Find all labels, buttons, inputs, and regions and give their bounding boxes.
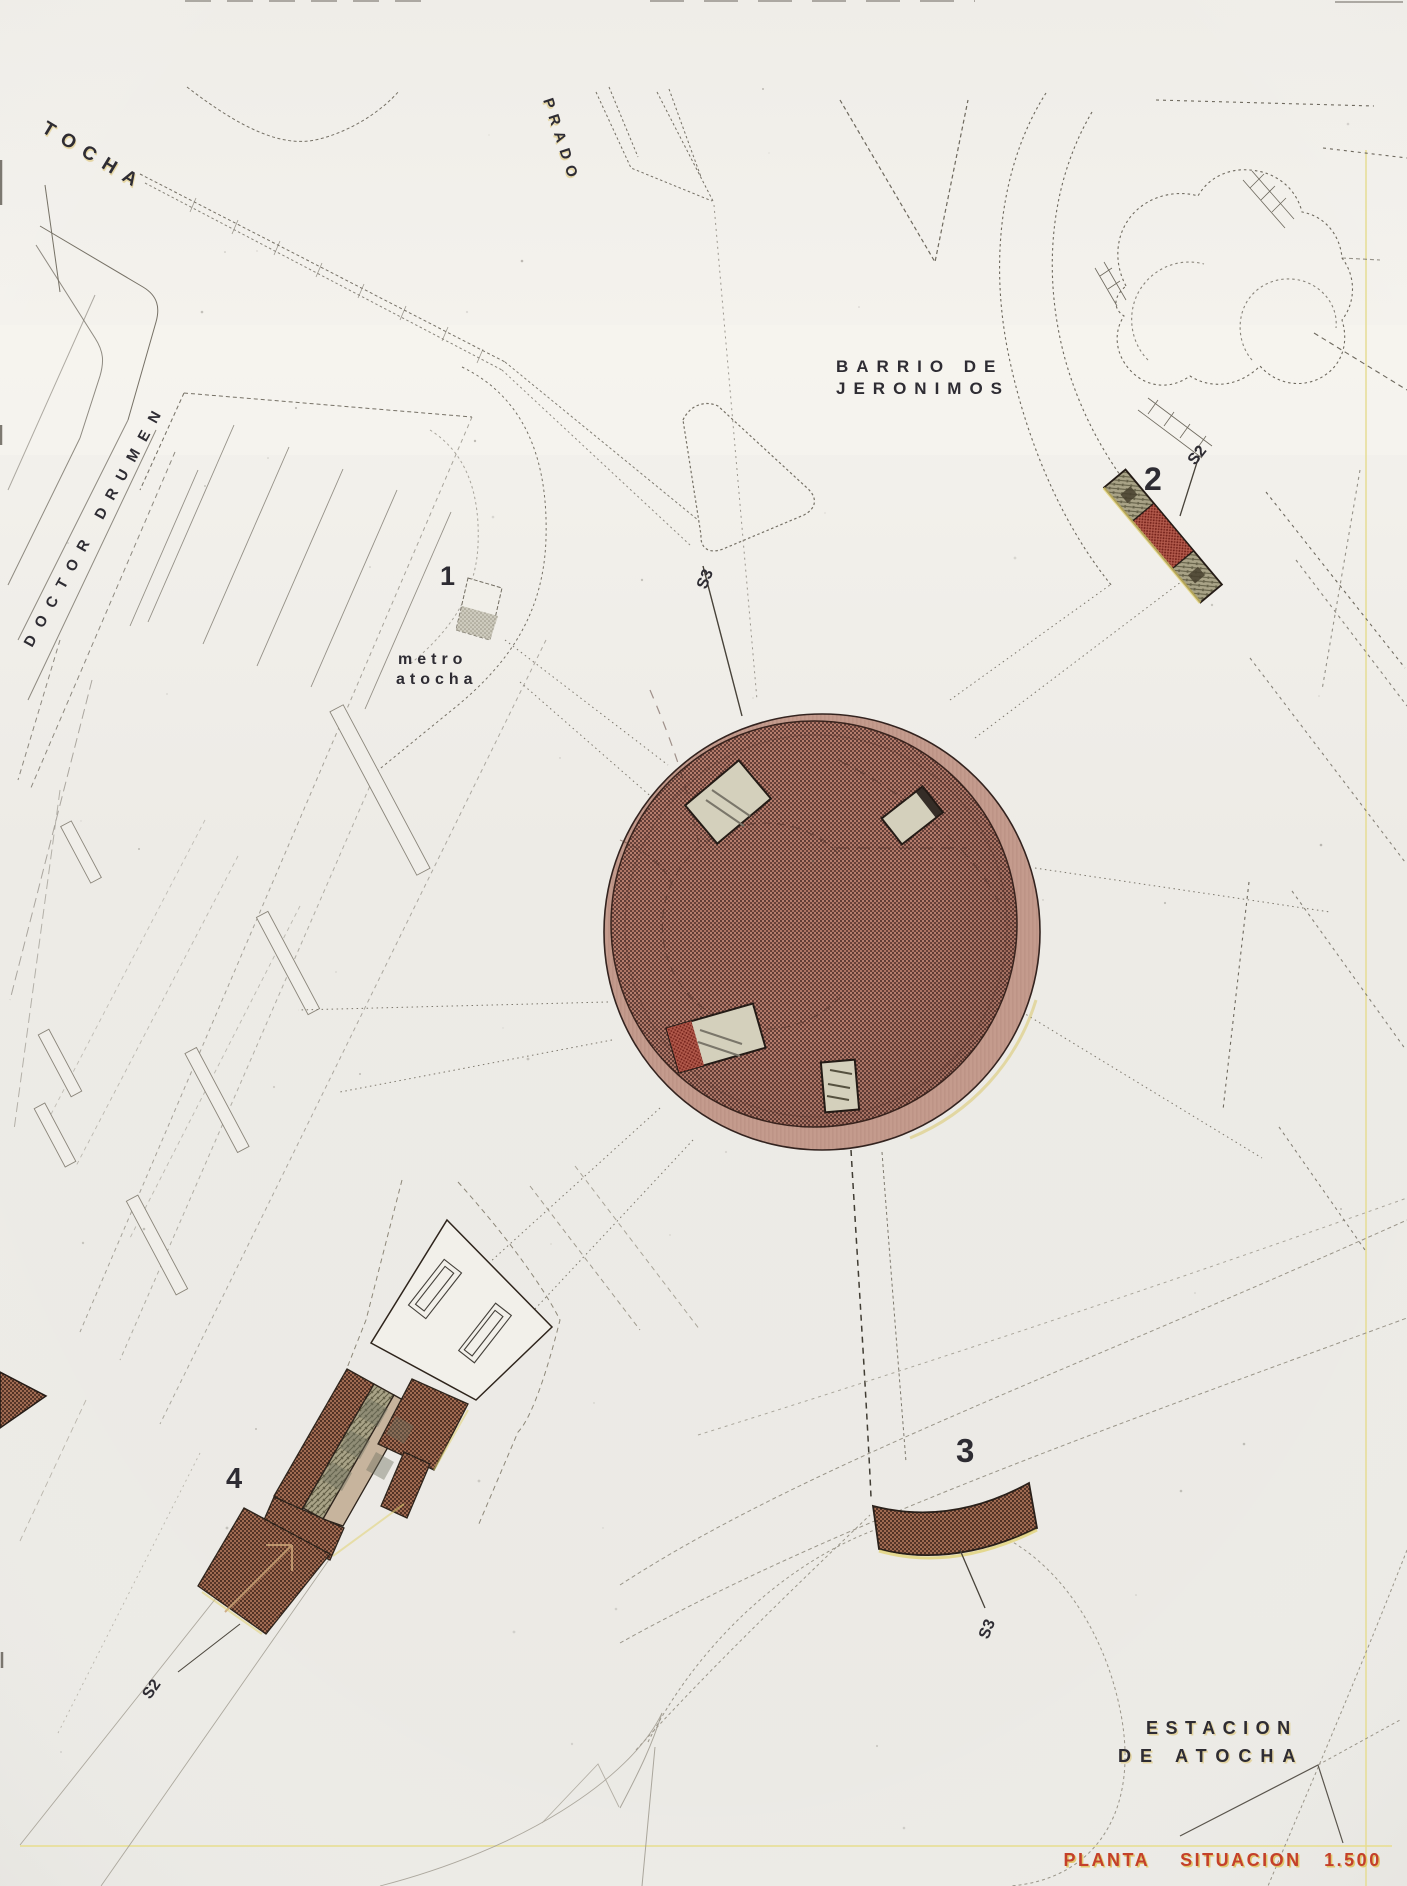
svg-text:PLANTA SITUACION 1.500: PLANTA SITUACION 1.500	[1064, 1850, 1382, 1870]
svg-text:1: 1	[440, 561, 455, 591]
svg-text:BARRIO DE: BARRIO DE	[836, 357, 1003, 376]
svg-text:JERONIMOS: JERONIMOS	[836, 379, 1010, 398]
svg-text:metro: metro	[398, 651, 467, 668]
svg-text:4: 4	[226, 1463, 242, 1495]
svg-text:2: 2	[1144, 461, 1162, 497]
svg-text:ESTACION: ESTACION	[1146, 1718, 1298, 1738]
svg-text:atocha: atocha	[396, 671, 478, 688]
svg-text:DE ATOCHA: DE ATOCHA	[1118, 1746, 1304, 1766]
svg-text:3: 3	[956, 1432, 974, 1469]
